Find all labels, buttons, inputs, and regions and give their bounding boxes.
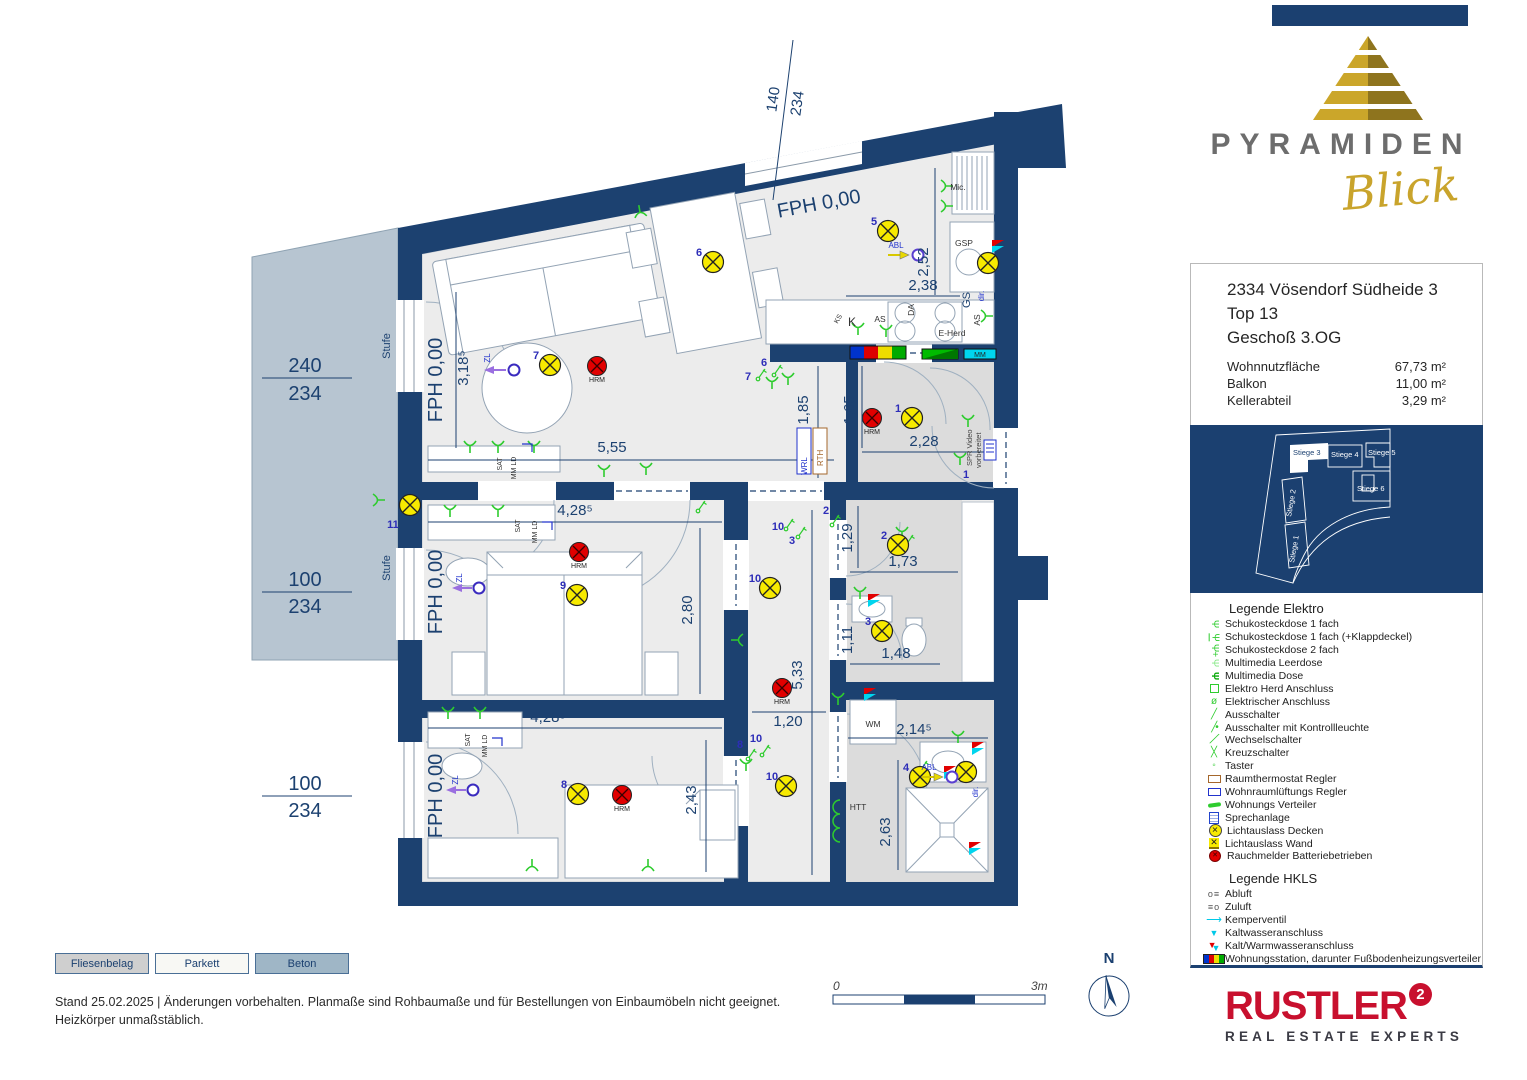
legend-item: Wohnungs Verteiler	[1203, 798, 1482, 811]
unit-info-panel: 2334 Vösendorf Südheide 3 Top 13 Geschoß…	[1190, 263, 1483, 426]
svg-text:7: 7	[745, 371, 751, 383]
legend-item: Raumthermostat Regler	[1203, 773, 1482, 786]
legend-hkls-title: Legende HKLS	[1229, 871, 1482, 886]
svg-text:dir.: dir.	[977, 291, 986, 302]
multimedia-leerdose-icon	[1203, 657, 1225, 669]
svg-text:WRL: WRL	[800, 457, 809, 475]
socket-1-klappdeckel-icon	[1203, 631, 1225, 643]
legend-item: Wohnraumlüftungs Regler	[1203, 786, 1482, 799]
svg-text:SAT: SAT	[515, 519, 522, 533]
svg-text:1,48: 1,48	[881, 645, 910, 662]
svg-text:HRM: HRM	[571, 563, 587, 570]
socket-1-icon	[1203, 618, 1225, 630]
svg-text:2,80: 2,80	[679, 595, 696, 624]
kemperventil-icon	[1203, 914, 1225, 926]
legend-item: Wohnraumlüftung	[1203, 965, 1482, 968]
unit-line: Top 13	[1227, 302, 1482, 326]
svg-text:ABL: ABL	[888, 241, 904, 250]
svg-text:SAT: SAT	[497, 457, 504, 471]
svg-text:8: 8	[561, 779, 567, 791]
rustler-tagline: REAL ESTATE EXPERTS	[1225, 1029, 1485, 1044]
svg-text:FPH 0,00: FPH 0,00	[425, 754, 447, 838]
svg-text:2,52: 2,52	[915, 247, 932, 276]
area-row: Kellerabteil3,29 m²	[1227, 392, 1446, 409]
svg-text:MM LD: MM LD	[482, 735, 489, 758]
svg-text:MM LD: MM LD	[532, 521, 539, 544]
svg-text:100: 100	[288, 569, 321, 591]
svg-text:Stufe: Stufe	[381, 333, 393, 359]
svg-text:2,38: 2,38	[908, 277, 937, 294]
ausschalter-kontrollleuchte-icon	[1203, 722, 1225, 734]
svg-text:Stiege 2: Stiege 2	[1284, 489, 1298, 518]
svg-text:2,63: 2,63	[877, 817, 894, 846]
round-table	[482, 343, 572, 433]
svg-text:10: 10	[749, 573, 761, 585]
legend-item: Wechselschalter	[1203, 734, 1482, 747]
svg-text:240: 240	[288, 355, 321, 377]
svg-text:5,33: 5,33	[789, 660, 806, 689]
svg-text:4,28⁵: 4,28⁵	[557, 502, 592, 519]
floorplan-sheet: MM	[0, 0, 1527, 1080]
legend-item: Lichtauslass Decken	[1203, 824, 1482, 837]
svg-text:N: N	[1104, 950, 1115, 967]
legend-item: Elektrischer Anschluss	[1203, 695, 1482, 708]
svg-text:234: 234	[288, 383, 321, 405]
legend-elektro-title: Legende Elektro	[1229, 601, 1482, 616]
svg-text:MM: MM	[974, 352, 986, 359]
address-line: 2334 Vösendorf Südheide 3	[1227, 278, 1482, 302]
pyramid-icon	[1190, 28, 1483, 128]
legend-item: Multimedia Leerdose	[1203, 657, 1482, 670]
legend-item: Taster	[1203, 760, 1482, 773]
svg-text:5,55: 5,55	[597, 439, 626, 456]
svg-text:Stiege 6: Stiege 6	[1357, 484, 1385, 493]
svg-text:6: 6	[761, 357, 767, 369]
svg-text:Stiege 3: Stiege 3	[1293, 448, 1321, 457]
svg-text:Stiege 5: Stiege 5	[1368, 448, 1396, 457]
legend-panel: Legende Elektro Schukosteckdose 1 fach S…	[1190, 593, 1483, 968]
material-legend: Fliesenbelag Parkett Beton	[55, 953, 349, 974]
raumthermostat-icon	[1203, 773, 1225, 785]
svg-text:MM LD: MM LD	[511, 457, 518, 480]
legend-item: Schukosteckdose 2 fach	[1203, 644, 1482, 657]
kalt-warmwasser-icon	[1203, 940, 1225, 952]
svg-text:2,28: 2,28	[909, 433, 938, 450]
brand-script-word: Blick	[1316, 155, 1485, 223]
legend-item: Sprechanlage	[1203, 811, 1482, 824]
site-overview-map: Stiege 3 Stiege 4 Stiege 5 Stiege 6 Stie…	[1190, 425, 1483, 593]
svg-text:1,85: 1,85	[795, 395, 812, 424]
svg-text:K: K	[848, 315, 856, 329]
svg-text:HRM: HRM	[864, 429, 880, 436]
legend-item: Ausschalter mit Kontrollleuchte	[1203, 721, 1482, 734]
svg-text:234: 234	[288, 596, 321, 618]
svg-text:HTT: HTT	[850, 802, 867, 812]
svg-text:FPH 0,00: FPH 0,00	[425, 338, 447, 422]
svg-text:9: 9	[560, 580, 566, 592]
svg-text:100: 100	[288, 773, 321, 795]
ausschalter-icon	[1203, 709, 1225, 721]
wechselschalter-icon	[1203, 734, 1225, 746]
svg-text:AS: AS	[972, 314, 982, 326]
svg-text:SAT: SAT	[465, 733, 472, 747]
wohnungsstation-icon	[850, 346, 906, 359]
svg-text:7: 7	[533, 350, 539, 362]
legend-item: Kalt/Warmwasseranschluss	[1203, 939, 1482, 952]
svg-text:2: 2	[823, 505, 829, 517]
sprechanlage-icon	[1203, 812, 1225, 824]
svg-text:1,29: 1,29	[839, 523, 856, 552]
svg-text:E-Herd: E-Herd	[939, 328, 966, 338]
svg-text:ZL: ZL	[451, 775, 460, 785]
elektrischer-anschluss-icon	[1203, 696, 1225, 708]
legend-item: Abluft	[1203, 888, 1482, 901]
lichtauslass-decken-icon	[1209, 824, 1222, 837]
svg-text:HRM: HRM	[614, 806, 630, 813]
scale-bar: 0 3m	[825, 975, 1070, 1015]
svg-text:1,73: 1,73	[888, 553, 917, 570]
wohnraumlueftungs-regler-icon	[1203, 786, 1225, 798]
wohnungsstation-icon	[1203, 953, 1225, 965]
balcony	[252, 228, 398, 660]
svg-text:WM: WM	[865, 719, 880, 729]
tv-sideboard	[428, 446, 560, 472]
abluft-icon	[1203, 888, 1225, 900]
rustler-sup-icon: 2	[1409, 983, 1432, 1006]
svg-text:3: 3	[865, 616, 871, 628]
svg-text:Stiege 1: Stiege 1	[1287, 535, 1301, 564]
svg-text:10: 10	[766, 771, 778, 783]
svg-text:8: 8	[737, 739, 743, 751]
legend-item: Lichtauslass Wand	[1203, 837, 1482, 850]
kreuzschalter-icon	[1203, 747, 1225, 759]
svg-text:2,43: 2,43	[683, 785, 700, 814]
pyramiden-blick-logo: PYRAMIDEN Blick	[1190, 28, 1483, 258]
svg-text:2: 2	[881, 530, 887, 542]
multimedia-dose-icon	[1203, 670, 1225, 682]
svg-text:10: 10	[750, 733, 762, 745]
top-accent-bar	[1272, 5, 1468, 26]
svg-text:Stufe: Stufe	[381, 555, 393, 581]
legend-item: Elektro Herd Anschluss	[1203, 682, 1482, 695]
wohnraumlueftung-icon	[1203, 966, 1225, 968]
svg-text:DA: DA	[906, 304, 916, 316]
svg-text:3,18⁵: 3,18⁵	[455, 350, 472, 385]
svg-text:SPR Video: SPR Video	[965, 429, 974, 466]
legend-item: Ausschalter	[1203, 708, 1482, 721]
legend-item: Rauchmelder Batteriebetrieben	[1203, 850, 1482, 863]
north-compass: N	[1083, 948, 1135, 1026]
svg-text:vorbereitet: vorbereitet	[974, 432, 983, 468]
legend-item: Kemperventil	[1203, 914, 1482, 927]
svg-text:ABL: ABL	[921, 763, 937, 772]
svg-text:GS: GS	[961, 292, 973, 308]
legend-item: Zuluft	[1203, 901, 1482, 914]
svg-text:3m: 3m	[1031, 979, 1048, 993]
legend-item: Wohnungsstation, darunter Fußbodenheizun…	[1203, 952, 1482, 965]
svg-text:Stiege 4: Stiege 4	[1331, 450, 1359, 459]
svg-text:234: 234	[787, 90, 807, 117]
socket-2-icon	[1203, 644, 1225, 656]
taster-icon	[1203, 760, 1225, 772]
svg-text:3: 3	[789, 535, 795, 547]
rustler-logo: RUSTLER2 REAL ESTATE EXPERTS	[1225, 983, 1485, 1044]
herd-anschluss-icon	[1203, 683, 1225, 695]
svg-text:GSP: GSP	[955, 238, 973, 248]
svg-text:6: 6	[696, 247, 702, 259]
svg-text:10: 10	[772, 521, 784, 533]
svg-text:1: 1	[963, 469, 969, 481]
svg-text:2,14⁵: 2,14⁵	[896, 721, 931, 738]
svg-text:1: 1	[895, 403, 901, 415]
svg-text:ZL: ZL	[455, 573, 464, 583]
svg-text:AS: AS	[874, 314, 886, 324]
kaltwasser-icon	[1203, 927, 1225, 939]
area-row: Balkon11,00 m²	[1227, 375, 1446, 392]
svg-text:FPH 0,00: FPH 0,00	[425, 550, 447, 634]
zuluft-icon	[1203, 901, 1225, 913]
area-row: Wohnnutzfläche67,73 m²	[1227, 358, 1446, 375]
floor-plan: MM	[0, 0, 1180, 1080]
svg-text:Mic.: Mic.	[950, 182, 966, 192]
rauchmelder-icon	[1209, 850, 1221, 862]
svg-text:dir.: dir.	[971, 787, 980, 798]
brand-word: PYRAMIDEN	[1190, 128, 1483, 162]
material-parkett: Parkett	[155, 953, 249, 974]
svg-text:1,11: 1,11	[839, 626, 856, 654]
legend-item: Schukosteckdose 1 fach	[1203, 618, 1482, 631]
svg-text:11: 11	[387, 519, 399, 531]
svg-text:HRM: HRM	[589, 377, 605, 384]
svg-text:4: 4	[903, 762, 910, 774]
legend-item: Multimedia Dose	[1203, 670, 1482, 683]
svg-text:ZL: ZL	[483, 353, 492, 363]
rustler-wordmark: RUSTLER	[1225, 984, 1407, 1028]
wohnungs-verteiler-icon	[1203, 799, 1225, 811]
legend-item: Kaltwasseranschluss	[1203, 927, 1482, 940]
svg-text:4,28⁵: 4,28⁵	[530, 709, 565, 726]
lichtauslass-wand-icon	[1203, 838, 1225, 850]
floor-line: Geschoß 3.OG	[1227, 326, 1482, 350]
svg-text:1,65: 1,65	[841, 395, 858, 424]
svg-text:HRM: HRM	[774, 699, 790, 706]
svg-text:1,20: 1,20	[773, 713, 802, 730]
legend-item: Schukosteckdose 1 fach (+Klappdeckel)	[1203, 631, 1482, 644]
svg-text:140: 140	[763, 86, 783, 113]
legend-item: Kreuzschalter	[1203, 747, 1482, 760]
svg-text:234: 234	[288, 800, 321, 822]
svg-text:RTH: RTH	[816, 449, 825, 466]
material-beton: Beton	[255, 953, 349, 974]
svg-text:5: 5	[871, 216, 877, 228]
svg-text:0: 0	[833, 979, 840, 993]
material-fliesenbelag: Fliesenbelag	[55, 953, 149, 974]
